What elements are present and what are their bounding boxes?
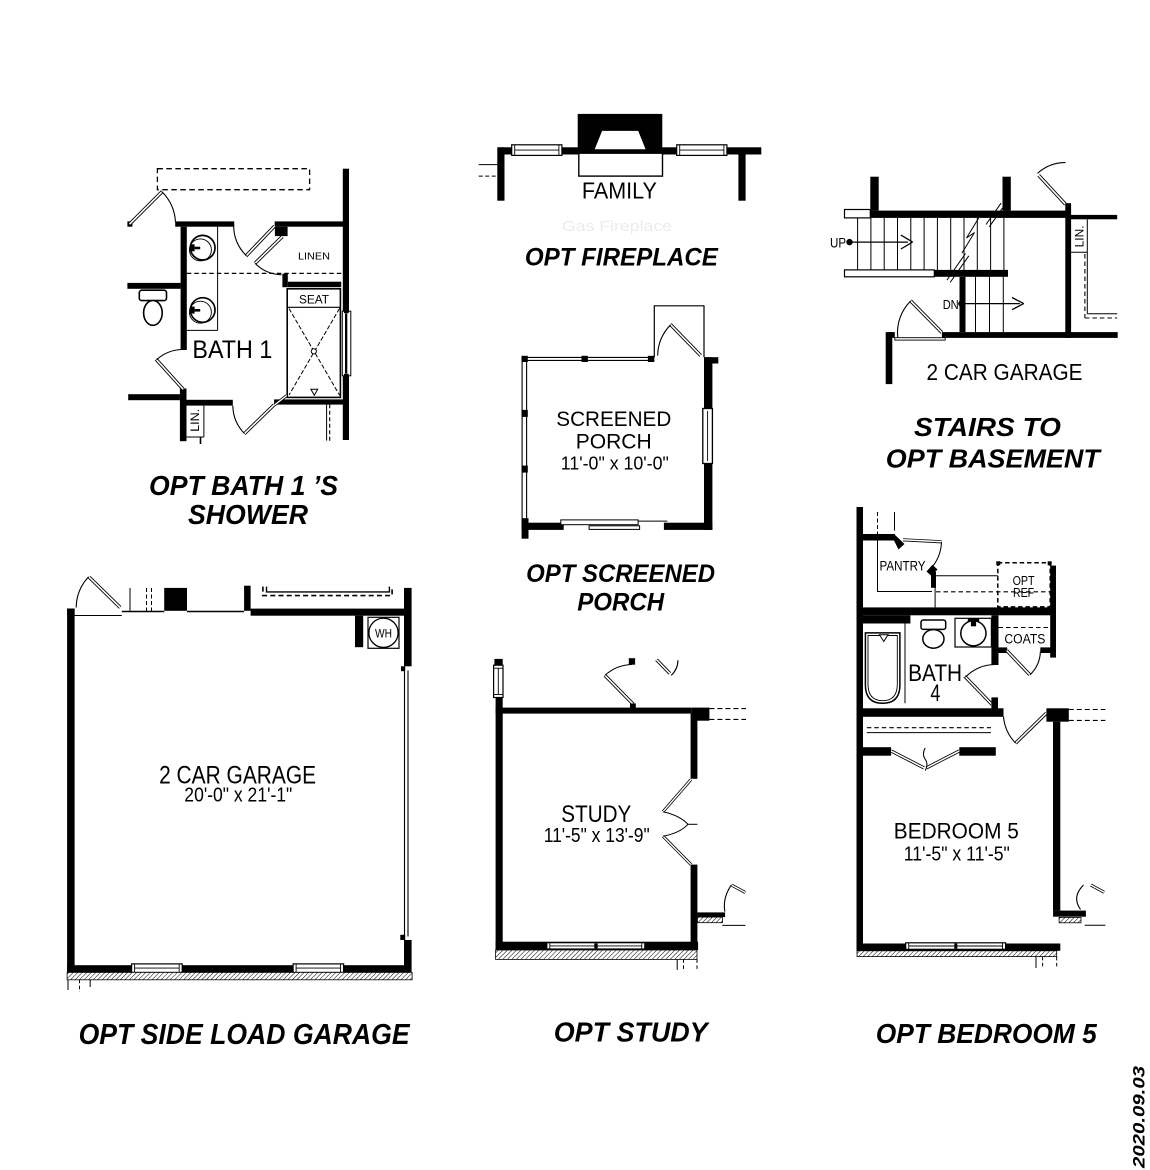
svg-text:OPT SCREENED: OPT SCREENED bbox=[526, 560, 715, 588]
svg-text:PORCH: PORCH bbox=[576, 431, 652, 454]
svg-text:STUDY: STUDY bbox=[561, 801, 631, 828]
svg-text:REF: REF bbox=[1013, 586, 1034, 600]
svg-text:PORCH: PORCH bbox=[577, 588, 665, 616]
svg-text:Gas Fireplace: Gas Fireplace bbox=[562, 219, 672, 235]
svg-text:11'-5" x 11'-5": 11'-5" x 11'-5" bbox=[904, 843, 1010, 865]
svg-text:OPT SIDE LOAD GARAGE: OPT SIDE LOAD GARAGE bbox=[79, 1019, 412, 1051]
svg-text:BATH 1: BATH 1 bbox=[192, 336, 272, 364]
svg-text:OPT STUDY: OPT STUDY bbox=[554, 1017, 710, 1048]
svg-text:LINEN: LINEN bbox=[298, 250, 330, 262]
svg-text:PANTRY: PANTRY bbox=[880, 559, 926, 574]
svg-text:STAIRS TO: STAIRS TO bbox=[914, 412, 1061, 442]
svg-text:WH: WH bbox=[375, 629, 392, 641]
svg-text:FAMILY: FAMILY bbox=[582, 177, 657, 203]
svg-text:OPT FIREPLACE: OPT FIREPLACE bbox=[525, 244, 719, 272]
svg-text:LIN.: LIN. bbox=[1075, 225, 1087, 247]
svg-text:SHOWER: SHOWER bbox=[188, 499, 309, 530]
svg-text:11'-5" x 13'-9": 11'-5" x 13'-9" bbox=[544, 825, 650, 847]
svg-text:SCREENED: SCREENED bbox=[556, 408, 671, 431]
svg-text:4: 4 bbox=[930, 680, 940, 707]
svg-text:20'-0" x 21'-1": 20'-0" x 21'-1" bbox=[184, 785, 292, 807]
svg-text:DN: DN bbox=[943, 297, 959, 312]
svg-text:OPT BATH 1 ’S: OPT BATH 1 ’S bbox=[149, 470, 338, 501]
svg-text:2 CAR GARAGE: 2 CAR GARAGE bbox=[927, 359, 1083, 385]
svg-text:LIN.: LIN. bbox=[190, 409, 202, 432]
svg-text:OPT BASEMENT: OPT BASEMENT bbox=[886, 444, 1102, 474]
svg-text:2020.09.03: 2020.09.03 bbox=[1130, 1065, 1149, 1169]
svg-text:SEAT: SEAT bbox=[299, 293, 330, 307]
svg-text:OPT BEDROOM 5: OPT BEDROOM 5 bbox=[876, 1018, 1097, 1049]
svg-text:COATS: COATS bbox=[1004, 631, 1045, 646]
svg-text:11'-0" x 10'-0": 11'-0" x 10'-0" bbox=[561, 452, 669, 473]
svg-text:BEDROOM 5: BEDROOM 5 bbox=[894, 819, 1019, 844]
svg-text:UP: UP bbox=[830, 235, 846, 251]
